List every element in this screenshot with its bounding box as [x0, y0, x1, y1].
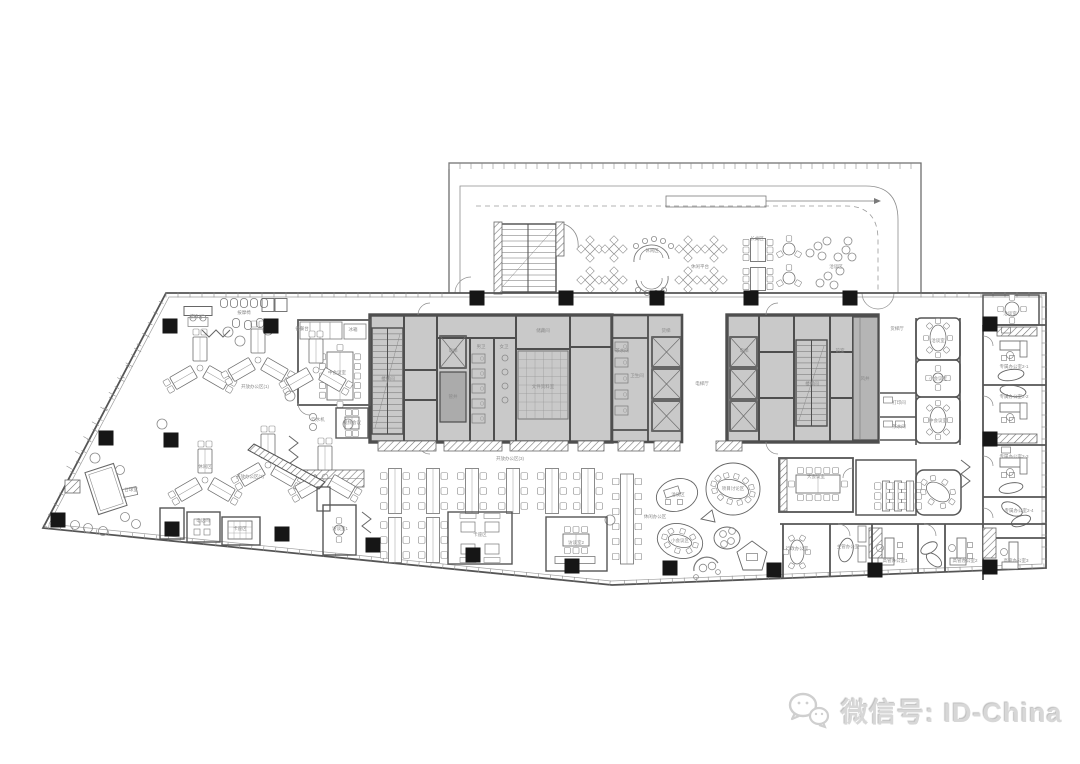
- door-arc: [766, 442, 778, 454]
- svg-text:前室: 前室: [836, 347, 845, 354]
- watermark-text: 微信号: ID-China: [841, 691, 1063, 730]
- door-arc: [878, 293, 894, 309]
- svg-text:台球室: 台球室: [124, 486, 138, 493]
- door-arc: [924, 524, 936, 536]
- door-arc: [983, 336, 993, 346]
- svg-text:视频会议: 视频会议: [343, 419, 361, 426]
- wechat-icon: [786, 690, 832, 730]
- curved-bench: [641, 278, 662, 289]
- svg-text:按摩椅: 按摩椅: [237, 309, 251, 316]
- svg-text:储藏间: 储藏间: [536, 327, 550, 334]
- svg-text:备餐台: 备餐台: [295, 325, 309, 332]
- rtab: [998, 295, 1027, 324]
- svg-text:货梯: 货梯: [662, 327, 671, 334]
- svg-text:访谈室1: 访谈室1: [332, 525, 348, 532]
- lounge-chair: [71, 466, 141, 536]
- plan-root: 中会议室备餐台冰箱饮水机视频会议楼梯间电梯管井男卫女卫文件资料室储藏间茶水间卫生…: [43, 163, 1047, 585]
- svg-text:楼梯间: 楼梯间: [805, 380, 819, 387]
- svg-text:茶水间: 茶水间: [892, 423, 906, 430]
- svg-text:风井: 风井: [861, 375, 870, 382]
- svg-text:洽谈室: 洽谈室: [931, 337, 945, 344]
- file-cabinets: [578, 441, 742, 451]
- svg-text:休闲区: 休闲区: [198, 463, 212, 470]
- door-arc: [766, 303, 778, 315]
- billiard-table: [85, 463, 127, 514]
- door-arc: [983, 508, 993, 518]
- hatch: [65, 480, 80, 493]
- terrace-long-table: [743, 239, 773, 291]
- svg-text:大会议室: 大会议室: [807, 473, 825, 480]
- file-cabinets: [378, 441, 568, 451]
- hatch: [494, 222, 502, 294]
- svg-text:卡座区: 卡座区: [473, 531, 487, 538]
- svg-text:电梯: 电梯: [740, 347, 749, 354]
- svg-text:文件资料室: 文件资料室: [532, 383, 555, 390]
- sofa: [837, 537, 856, 563]
- svg-text:货梯厅: 货梯厅: [890, 325, 904, 332]
- svg-text:访谈室2: 访谈室2: [568, 539, 584, 546]
- terrace-round-table: [776, 236, 802, 287]
- svg-text:开放办公区(2): 开放办公区(2): [236, 473, 265, 480]
- svg-text:打印间: 打印间: [892, 399, 906, 406]
- svg-text:行政办公室: 行政办公室: [786, 545, 809, 552]
- svg-text:冰箱: 冰箱: [349, 326, 358, 333]
- conference-table: [789, 468, 848, 501]
- svg-text:休闲区: 休闲区: [645, 247, 659, 254]
- svg-text:专属办公室2-1: 专属办公室2-1: [999, 363, 1029, 370]
- hatch: [556, 222, 564, 256]
- svg-text:开放办公区(3): 开放办公区(3): [496, 455, 525, 462]
- svg-text:卡座区: 卡座区: [233, 525, 247, 532]
- sofa: [997, 368, 1024, 383]
- svg-text:卫生间: 卫生间: [630, 372, 644, 379]
- svg-text:接待台: 接待台: [189, 313, 203, 320]
- pod-booth: [737, 541, 767, 570]
- chair: [666, 500, 683, 505]
- svg-text:中会议室: 中会议室: [929, 417, 947, 424]
- svg-text:高管办公室2: 高管办公室2: [952, 557, 977, 564]
- svg-text:管井: 管井: [449, 393, 458, 400]
- svg-text:小会议区: 小会议区: [671, 537, 689, 544]
- svg-text:洽谈室: 洽谈室: [1003, 310, 1017, 317]
- door-arc: [862, 293, 878, 309]
- terrace-stair: [500, 224, 556, 292]
- stool: [720, 528, 736, 548]
- floor-plan-drawing: 中会议室备餐台冰箱饮水机视频会议楼梯间电梯管井男卫女卫文件资料室储藏间茶水间卫生…: [0, 0, 1080, 764]
- svg-text:开放办公区(1): 开放办公区(1): [241, 383, 270, 390]
- terrace-mullions: [449, 163, 911, 169]
- planter-row: [67, 333, 150, 470]
- svg-text:洽谈区: 洽谈区: [671, 491, 685, 498]
- svg-text:项目讨论区: 项目讨论区: [722, 485, 745, 492]
- svg-text:楼梯间: 楼梯间: [381, 375, 395, 382]
- core-a: [370, 315, 612, 442]
- watermark: 微信号: ID-China: [786, 690, 1063, 730]
- zigzag-screen: [961, 460, 970, 488]
- sofa: [919, 539, 940, 557]
- rect: [747, 554, 758, 561]
- svg-text:主管办公室: 主管办公室: [837, 543, 860, 550]
- svg-text:专属办公室2-2: 专属办公室2-2: [999, 393, 1029, 400]
- door-arc: [843, 468, 853, 478]
- svg-text:电梯厅: 电梯厅: [695, 380, 709, 387]
- guest-chair: [898, 356, 1015, 559]
- interview-room: [187, 512, 220, 542]
- path: [564, 224, 578, 250]
- svg-text:洽谈区: 洽谈区: [829, 263, 843, 270]
- svg-text:中会议室: 中会议室: [328, 369, 346, 376]
- door-arc: [983, 456, 993, 466]
- terrace-outer-wall: [449, 163, 921, 293]
- svg-text:女卫: 女卫: [500, 343, 509, 350]
- svg-text:休闲办公区: 休闲办公区: [644, 513, 667, 520]
- svg-text:高管办公室1: 高管办公室1: [882, 557, 907, 564]
- bench-desk: [613, 474, 642, 564]
- svg-text:高管办公室3: 高管办公室3: [1003, 557, 1028, 564]
- svg-text:电梯: 电梯: [449, 347, 458, 354]
- sofa: [998, 481, 1023, 495]
- svg-text:休闲平台: 休闲平台: [691, 263, 709, 270]
- booth-seat: [262, 299, 287, 312]
- svg-text:长桌区: 长桌区: [750, 235, 764, 242]
- door-arc: [455, 277, 471, 293]
- round-table: [699, 562, 716, 572]
- svg-text:专属办公室2-4: 专属办公室2-4: [1004, 507, 1034, 514]
- water-dispenser: [309, 413, 316, 430]
- door-arc: [418, 303, 430, 315]
- arrow: [874, 198, 881, 204]
- svg-text:饮水机: 饮水机: [311, 416, 325, 423]
- svg-text:茶水间: 茶水间: [615, 347, 629, 354]
- sofa: [924, 550, 944, 569]
- otab: [784, 535, 811, 570]
- svg-text:小会议室: 小会议室: [929, 375, 947, 382]
- floor-plan-page: 中会议室备餐台冰箱饮水机视频会议楼梯间电梯管井男卫女卫文件资料室储藏间茶水间卫生…: [0, 0, 1080, 764]
- terrace-skylight-track: [666, 196, 766, 207]
- terrace-lounge-chair: [806, 237, 856, 289]
- hatch: [780, 459, 787, 511]
- bench-desk: [875, 481, 922, 511]
- path: [701, 510, 715, 522]
- door-arc: [983, 396, 993, 406]
- door-arc: [838, 524, 850, 536]
- zigzag-screen: [362, 512, 371, 533]
- svg-text:专属办公室2-3: 专属办公室2-3: [999, 453, 1029, 460]
- svg-text:电话间: 电话间: [196, 517, 210, 524]
